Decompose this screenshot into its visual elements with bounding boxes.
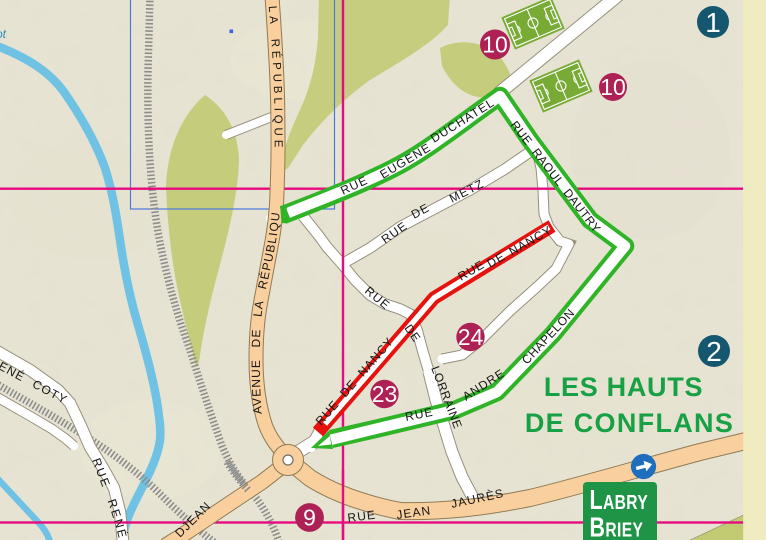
svg-text:10: 10 bbox=[600, 74, 626, 100]
svg-text:10: 10 bbox=[482, 32, 508, 58]
svg-text:DE CONFLANS: DE CONFLANS bbox=[525, 408, 734, 438]
svg-text:9: 9 bbox=[303, 505, 316, 531]
svg-text:1: 1 bbox=[705, 7, 721, 38]
svg-text:2: 2 bbox=[706, 336, 722, 367]
svg-text:ot: ot bbox=[0, 27, 7, 41]
svg-text:23: 23 bbox=[372, 381, 398, 407]
svg-text:24: 24 bbox=[458, 324, 484, 350]
svg-text:LES HAUTS: LES HAUTS bbox=[544, 372, 703, 402]
